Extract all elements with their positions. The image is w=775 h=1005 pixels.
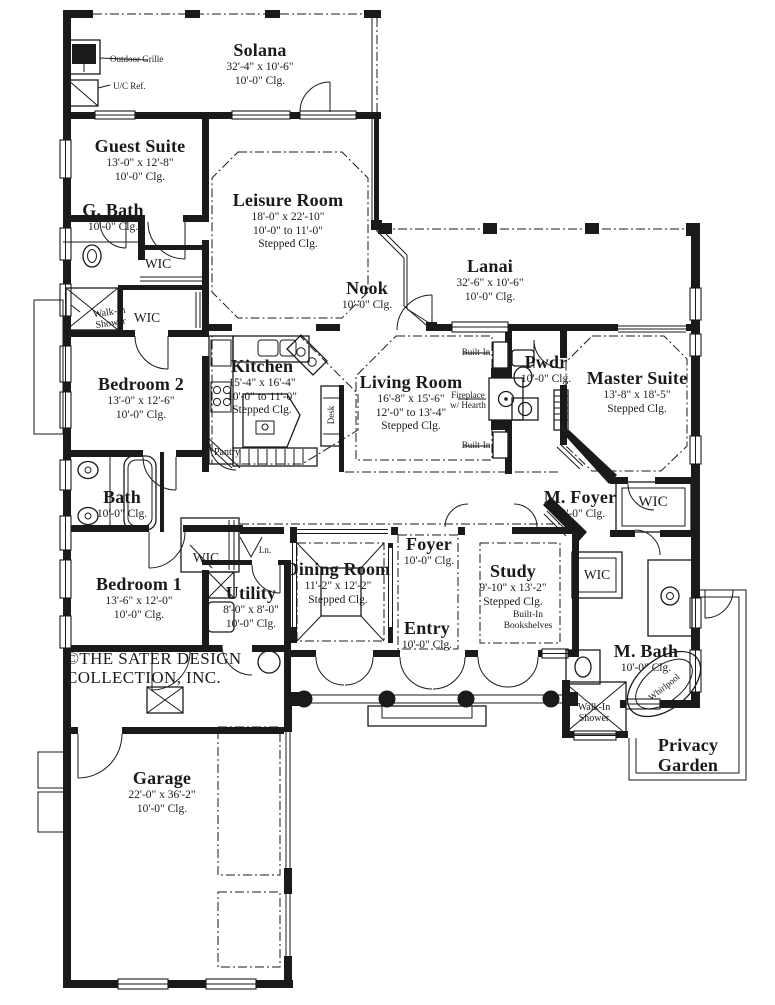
fireplace-label: Fireplace w/ Hearth bbox=[450, 390, 486, 410]
room-name: Master Suite bbox=[587, 368, 688, 389]
room-dims: 13'-0" x 12'-6" bbox=[98, 395, 184, 409]
room-clg: 10'-0" Clg. bbox=[128, 803, 195, 817]
built-in-label-bottom: Built-In bbox=[462, 440, 491, 450]
room-clg: 10'-0" Clg. bbox=[404, 555, 454, 569]
room-clg: 10'-0" Clg. bbox=[544, 508, 617, 522]
room-label-foyer: Foyer 10'-0" Clg. bbox=[404, 534, 454, 569]
room-name: Entry bbox=[402, 618, 452, 639]
room-label-m-foyer: M. Foyer 10'-0" Clg. bbox=[544, 487, 617, 522]
copyright-line2: COLLECTION, INC. bbox=[66, 668, 242, 687]
uc-ref-label: U/C Ref. bbox=[113, 81, 146, 91]
room-dims: 13'-0" x 12'-8" bbox=[95, 157, 186, 171]
room-name: Pwdr bbox=[521, 352, 571, 373]
entry-porch bbox=[291, 691, 578, 727]
room-dims: 11'-2" x 12'-2" bbox=[286, 580, 391, 594]
room-label-m-bath: M. Bath 10'-0" Clg. bbox=[614, 641, 678, 676]
room-name: Living Room bbox=[360, 372, 463, 393]
room-clg: 10'-0" Clg. bbox=[82, 221, 143, 235]
room-name: M. Bath bbox=[614, 641, 678, 662]
room-label-g-bath: G. Bath 10'-0" Clg. bbox=[82, 200, 143, 235]
room-label-kitchen: Kitchen 15'-4" x 16'-4" 10'-0" to 11'-0"… bbox=[227, 356, 297, 418]
room-name: Leisure Room bbox=[233, 190, 344, 211]
room-clg2: Stepped Clg. bbox=[227, 404, 297, 418]
room-name: M. Foyer bbox=[544, 487, 617, 508]
fireplace-icon bbox=[489, 378, 523, 420]
room-label-solana: Solana 32'-4" x 10'-6" 10'-0" Clg. bbox=[226, 40, 293, 88]
walk-in-shower-line1: Walk-In bbox=[578, 702, 611, 713]
room-dims: 13'-8" x 18'-5" bbox=[587, 389, 688, 403]
walkway-column bbox=[258, 651, 280, 673]
fireplace-line2: w/ Hearth bbox=[450, 400, 486, 410]
room-label-pwdr: Pwdr 10'-0" Clg. bbox=[521, 352, 571, 387]
desk-label: Desk bbox=[326, 406, 336, 425]
room-clg: 10'-0" Clg. bbox=[521, 373, 571, 387]
porch-column bbox=[296, 691, 313, 708]
room-clg: 10'-0" Clg. bbox=[223, 618, 279, 632]
room-clg: 10'-0" Clg. bbox=[402, 639, 452, 653]
room-name: G. Bath bbox=[82, 200, 143, 221]
room-label-utility: Utility 8'-0" x 8'-0" 10'-0" Clg. bbox=[223, 583, 279, 631]
room-dims: 22'-0" x 36'-2" bbox=[128, 789, 195, 803]
wic-label-master-2: WIC bbox=[584, 567, 610, 583]
exterior-pad bbox=[38, 792, 64, 832]
room-name: Kitchen bbox=[227, 356, 297, 377]
room-clg: 10'-0" Clg. bbox=[97, 508, 147, 522]
wic-label-master-1: WIC bbox=[638, 494, 667, 511]
room-label-privacy-garden: Privacy Garden bbox=[633, 736, 743, 776]
room-clg: 10'-0" Clg. bbox=[96, 609, 182, 623]
porch-column bbox=[379, 691, 396, 708]
room-name: Solana bbox=[226, 40, 293, 61]
room-label-bath: Bath 10'-0" Clg. bbox=[97, 487, 147, 522]
built-in-top bbox=[493, 342, 508, 368]
room-label-garage: Garage 22'-0" x 36'-2" 10'-0" Clg. bbox=[128, 768, 195, 816]
wic-label-guest-2: WIC bbox=[134, 310, 160, 326]
room-label-master-suite: Master Suite 13'-8" x 18'-5" Stepped Clg… bbox=[587, 368, 688, 416]
room-clg: 10'-0" Clg. bbox=[614, 662, 678, 676]
room-clg: Stepped Clg. bbox=[587, 403, 688, 417]
room-dims: 32'-6" x 10'-6" bbox=[456, 277, 523, 291]
room-dims: 16'-8" x 15'-6" bbox=[360, 393, 463, 407]
built-in-bottom bbox=[493, 432, 508, 458]
room-name: Bedroom 1 bbox=[96, 574, 182, 595]
outdoor-grille-label: Outdoor Grille bbox=[110, 54, 163, 64]
room-label-guest-suite: Guest Suite 13'-0" x 12'-8" 10'-0" Clg. bbox=[95, 136, 186, 184]
porch-column bbox=[543, 691, 560, 708]
room-dims: 15'-4" x 16'-4" bbox=[227, 377, 297, 391]
room-clg: 10'-0" to 11'-0" bbox=[227, 391, 297, 405]
room-name: Garage bbox=[128, 768, 195, 789]
room-label-bedroom-2: Bedroom 2 13'-0" x 12'-6" 10'-0" Clg. bbox=[98, 374, 184, 422]
room-name: Privacy Garden bbox=[633, 736, 743, 776]
pantry-label: Pantry bbox=[214, 447, 240, 458]
walk-in-shower-line2: Shower bbox=[578, 713, 611, 724]
room-clg: 12'-0" to 13'-4" bbox=[360, 407, 463, 421]
room-label-bedroom-1: Bedroom 1 13'-6" x 12'-0" 10'-0" Clg. bbox=[96, 574, 182, 622]
room-clg: Stepped Clg. bbox=[286, 594, 391, 608]
windows bbox=[60, 111, 701, 989]
room-name: Bedroom 2 bbox=[98, 374, 184, 395]
room-clg2: Stepped Clg. bbox=[233, 238, 344, 252]
linen-label: Ln. bbox=[259, 545, 271, 555]
room-label-lanai: Lanai 32'-6" x 10'-6" 10'-0" Clg. bbox=[456, 256, 523, 304]
room-clg: Stepped Clg. bbox=[479, 596, 546, 610]
room-name: Dining Room bbox=[286, 559, 391, 580]
room-clg: 10'-0" Clg. bbox=[95, 171, 186, 185]
room-clg2: Stepped Clg. bbox=[360, 420, 463, 434]
room-label-entry: Entry 10'-0" Clg. bbox=[402, 618, 452, 653]
built-in-label-top: Built-In bbox=[462, 347, 491, 357]
wic-label-bedroom1: WIC bbox=[193, 550, 219, 566]
room-clg: 10'-0" Clg. bbox=[342, 299, 392, 313]
floor-plan-page: Solana 32'-4" x 10'-6" 10'-0" Clg. Guest… bbox=[0, 0, 775, 1005]
room-label-study: Study 9'-10" x 13'-2" Stepped Clg. bbox=[479, 561, 546, 609]
bookshelves-line2: Bookshelves bbox=[504, 621, 553, 632]
bookshelves-label: Built-In Bookshelves bbox=[504, 610, 553, 631]
fireplace-line1: Fireplace bbox=[450, 390, 486, 400]
entry-steps bbox=[368, 706, 486, 726]
bookshelves-line1: Built-In bbox=[504, 610, 553, 621]
room-dims: 13'-6" x 12'-0" bbox=[96, 595, 182, 609]
uc-ref-icon bbox=[68, 80, 110, 106]
walk-in-shower-label-1: Walk-In Shower bbox=[92, 305, 127, 332]
planter bbox=[34, 300, 63, 434]
room-name: Foyer bbox=[404, 534, 454, 555]
room-dims: 9'-10" x 13'-2" bbox=[479, 582, 546, 596]
copyright-line1: ©THE SATER DESIGN bbox=[66, 649, 242, 668]
room-label-living-room: Living Room 16'-8" x 15'-6" 12'-0" to 13… bbox=[360, 372, 463, 434]
copyright-text: ©THE SATER DESIGN COLLECTION, INC. bbox=[66, 649, 242, 687]
room-clg: 10'-0" Clg. bbox=[226, 75, 293, 89]
wic-label-guest-1: WIC bbox=[145, 256, 171, 272]
room-name: Study bbox=[479, 561, 546, 582]
room-name: Nook bbox=[342, 278, 392, 299]
room-dims: 18'-0" x 22'-10" bbox=[233, 211, 344, 225]
room-name: Utility bbox=[223, 583, 279, 604]
room-clg: 10'-0" Clg. bbox=[456, 291, 523, 305]
room-clg: 10'-0" Clg. bbox=[98, 409, 184, 423]
walk-in-shower-label-2: Walk-In Shower bbox=[578, 702, 611, 724]
room-name: Guest Suite bbox=[95, 136, 186, 157]
room-name: Bath bbox=[97, 487, 147, 508]
room-dims: 32'-4" x 10'-6" bbox=[226, 61, 293, 75]
room-name: Lanai bbox=[456, 256, 523, 277]
room-label-nook: Nook 10'-0" Clg. bbox=[342, 278, 392, 313]
room-clg: 10'-0" to 11'-0" bbox=[233, 225, 344, 239]
porch-column bbox=[458, 691, 475, 708]
guest-bath-sink bbox=[83, 245, 101, 267]
exterior-pad bbox=[38, 752, 64, 788]
room-label-leisure-room: Leisure Room 18'-0" x 22'-10" 10'-0" to … bbox=[233, 190, 344, 252]
room-dims: 8'-0" x 8'-0" bbox=[223, 604, 279, 618]
room-label-dining-room: Dining Room 11'-2" x 12'-2" Stepped Clg. bbox=[286, 559, 391, 607]
